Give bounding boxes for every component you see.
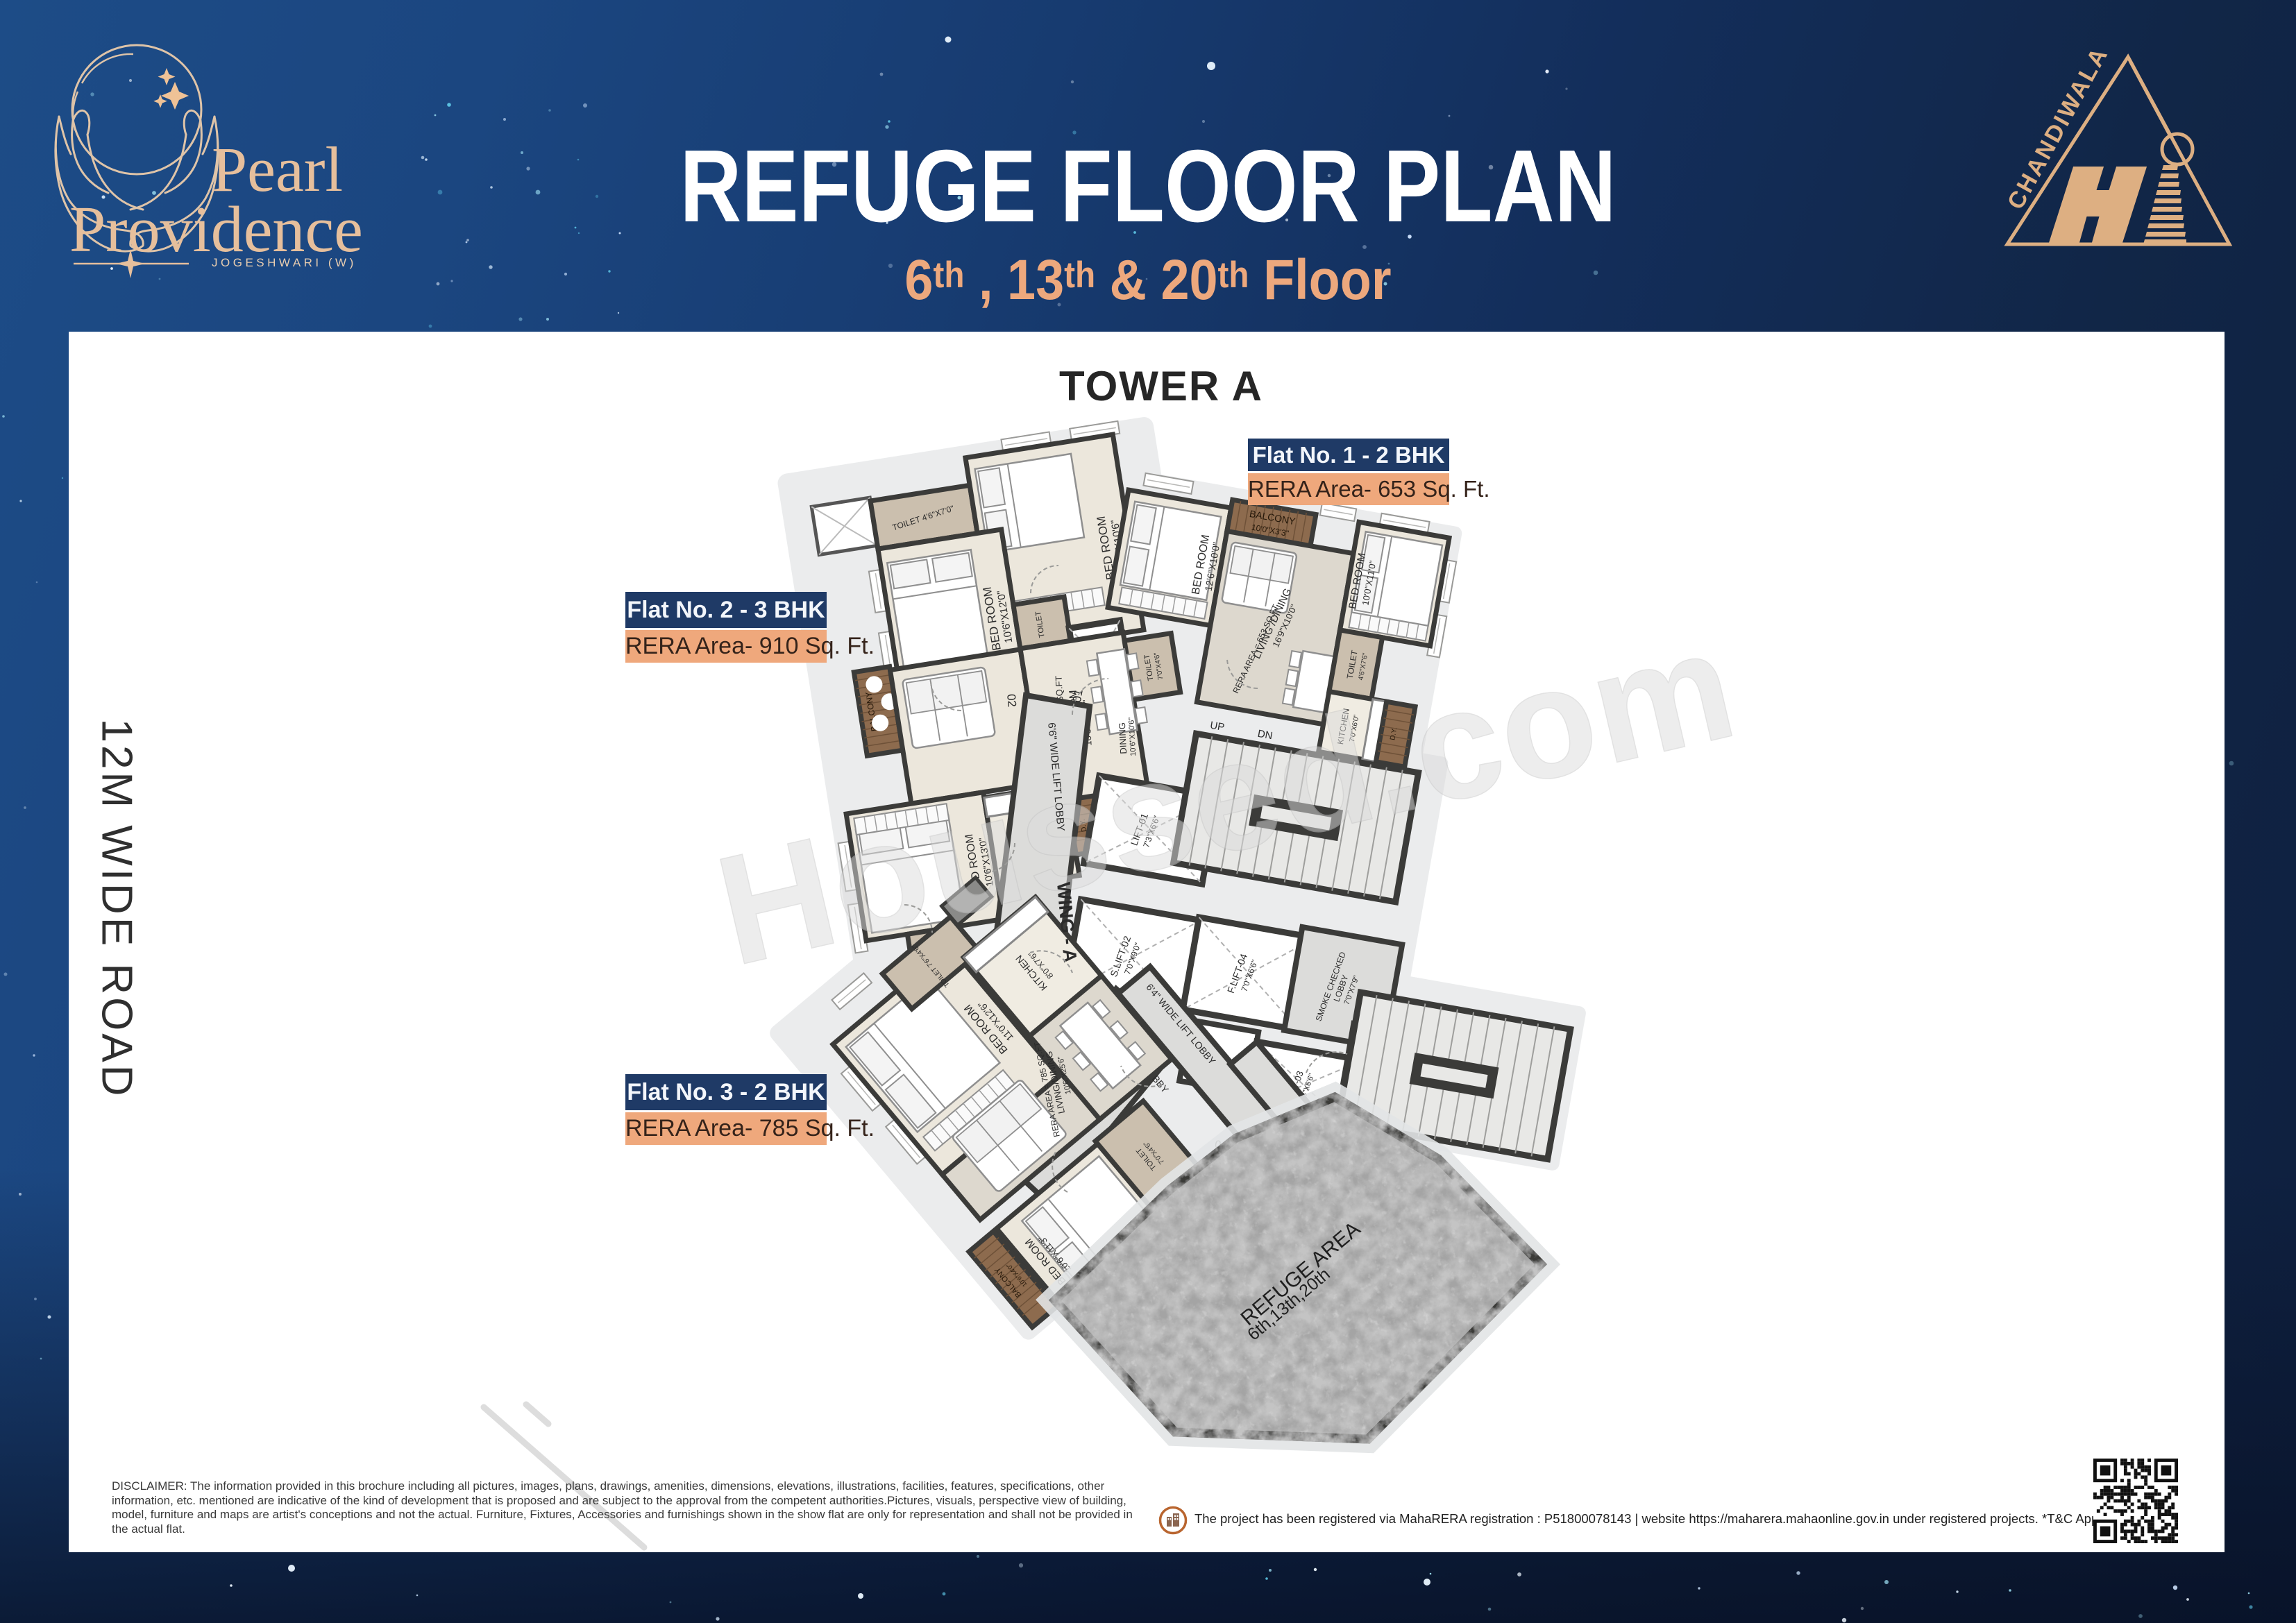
svg-text:02: 02 (1004, 693, 1019, 708)
svg-text:01: 01 (1070, 688, 1086, 704)
